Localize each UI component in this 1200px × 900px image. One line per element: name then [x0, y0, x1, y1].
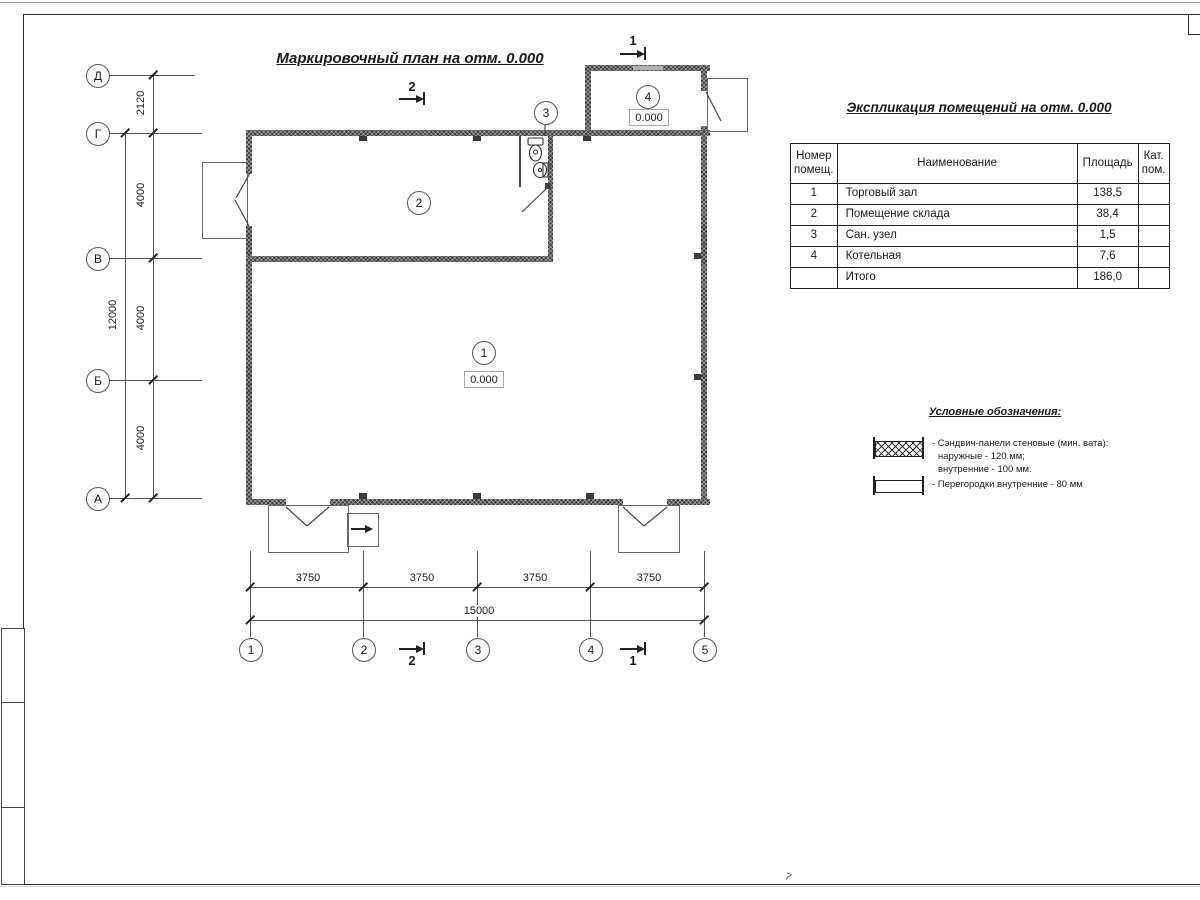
- legend-item-2-line-1: - Перегородки внутренние - 80 мм: [932, 479, 1083, 492]
- room-label-3: 3: [534, 101, 558, 125]
- cell-name: Сан. узел: [837, 226, 1077, 247]
- table-total-row: Итого 186,0: [791, 268, 1170, 289]
- cell-cat: [1138, 184, 1169, 205]
- cell-cat: [1138, 226, 1169, 247]
- cell-name: Котельная: [837, 247, 1077, 268]
- cell-name: Торговый зал: [837, 184, 1077, 205]
- toilet-bowl: [530, 145, 542, 161]
- cell-num: [791, 268, 838, 289]
- cell-area: 38,4: [1077, 205, 1138, 226]
- explication-table: Номерпомещ. Наименование Площадь Кат.пом…: [790, 143, 1170, 289]
- door-leaf: [235, 200, 249, 226]
- col-header-num: Номерпомещ.: [791, 144, 838, 184]
- legend-partition-symbol: [875, 480, 923, 493]
- legend-symbol-end: [922, 476, 924, 495]
- legend-symbol-end: [922, 437, 924, 459]
- door-leaf: [644, 507, 667, 526]
- legend-item-1-line-1: - Сэндвич-панели стеновые (мин. вата):: [932, 438, 1108, 451]
- room-label-4: 4: [636, 85, 660, 109]
- door-leaf: [623, 507, 644, 526]
- door-leaf: [286, 507, 307, 526]
- cell-area: 186,0: [1077, 268, 1138, 289]
- room-4-level: 0.000: [629, 109, 669, 126]
- table-row: 1 Торговый зал 138,5: [791, 184, 1170, 205]
- table-header-row: Номерпомещ. Наименование Площадь Кат.пом…: [791, 144, 1170, 184]
- door-leaf: [706, 92, 721, 121]
- cell-cat: [1138, 268, 1169, 289]
- room-1-level: 0.000: [464, 371, 504, 388]
- door-leaf: [307, 507, 329, 526]
- sink-bowl: [534, 163, 547, 178]
- cell-area: 7,6: [1077, 247, 1138, 268]
- col-header-cat: Кат.пом.: [1138, 144, 1169, 184]
- cell-area: 138,5: [1077, 184, 1138, 205]
- room-label-1: 1: [472, 341, 496, 365]
- cell-num: 2: [791, 205, 838, 226]
- sink-drain: [538, 168, 541, 171]
- cell-num: 4: [791, 247, 838, 268]
- legend-item-1-line-3: внутренние - 100 мм.: [938, 464, 1032, 477]
- cell-cat: [1138, 205, 1169, 226]
- room-label-2: 2: [407, 191, 431, 215]
- legend-title: Условные обозначения:: [900, 406, 1090, 418]
- cell-num: 3: [791, 226, 838, 247]
- cell-area: 1,5: [1077, 226, 1138, 247]
- cell-cat: [1138, 247, 1169, 268]
- cell-name: Итого: [837, 268, 1077, 289]
- table-title: Экспликация помещений на отм. 0.000: [790, 100, 1168, 115]
- toilet-tank: [528, 138, 543, 145]
- legend-sandwich-panel-symbol: [875, 441, 923, 457]
- door-leaf: [236, 173, 250, 198]
- door-leaf: [522, 189, 546, 212]
- table-row: 3 Сан. узел 1,5: [791, 226, 1170, 247]
- table-row: 2 Помещение склада 38,4: [791, 205, 1170, 226]
- col-header-area: Площадь: [1077, 144, 1138, 184]
- cell-num: 1: [791, 184, 838, 205]
- table-row: 4 Котельная 7,6: [791, 247, 1170, 268]
- legend-item-1-line-2: наружные - 120 мм;: [938, 451, 1025, 464]
- col-header-name: Наименование: [837, 144, 1077, 184]
- cell-name: Помещение склада: [837, 205, 1077, 226]
- drawing-sheet: 7 Маркировочный план на отм. 0.000 2120 …: [0, 0, 1200, 900]
- toilet-detail: [534, 150, 538, 154]
